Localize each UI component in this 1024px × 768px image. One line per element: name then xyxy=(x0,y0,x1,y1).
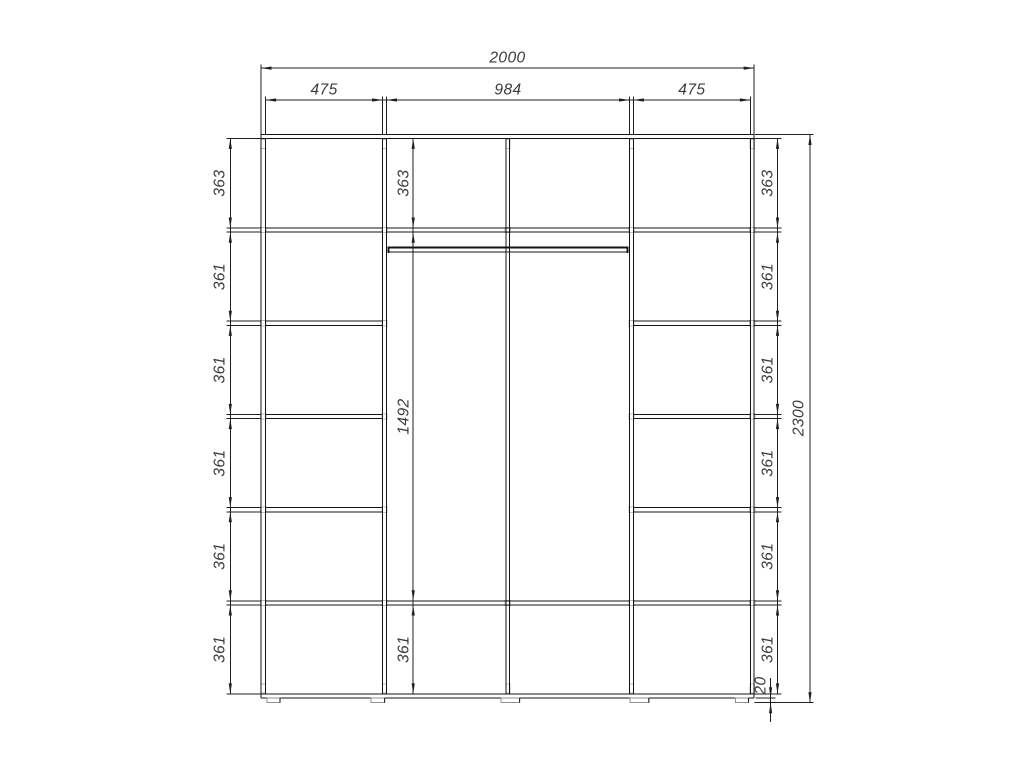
svg-text:361: 361 xyxy=(760,263,777,290)
svg-text:20: 20 xyxy=(753,676,770,695)
svg-text:361: 361 xyxy=(212,636,229,663)
svg-text:363: 363 xyxy=(396,170,413,197)
svg-text:984: 984 xyxy=(494,81,521,98)
svg-text:361: 361 xyxy=(760,543,777,570)
svg-text:361: 361 xyxy=(212,356,229,383)
svg-text:2300: 2300 xyxy=(791,400,808,437)
svg-text:2000: 2000 xyxy=(488,50,525,67)
svg-text:361: 361 xyxy=(396,636,413,663)
svg-text:363: 363 xyxy=(760,170,777,197)
svg-text:475: 475 xyxy=(678,81,705,98)
svg-text:361: 361 xyxy=(212,449,229,476)
svg-text:361: 361 xyxy=(212,543,229,570)
svg-text:1492: 1492 xyxy=(396,398,413,434)
svg-text:361: 361 xyxy=(212,263,229,290)
svg-text:361: 361 xyxy=(760,636,777,663)
svg-text:361: 361 xyxy=(760,356,777,383)
svg-text:363: 363 xyxy=(212,170,229,197)
svg-text:361: 361 xyxy=(760,449,777,476)
svg-text:475: 475 xyxy=(310,81,337,98)
